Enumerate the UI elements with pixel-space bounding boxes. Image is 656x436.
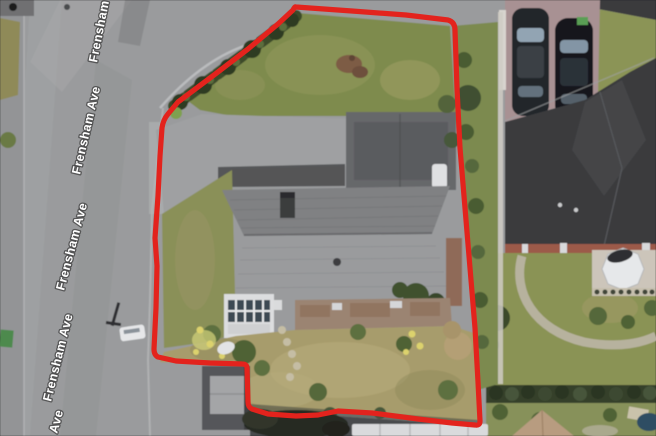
wall-post-1	[522, 244, 528, 253]
bg-bush-6	[396, 336, 412, 352]
lower-bush-3	[603, 408, 617, 422]
rear-bush-3	[392, 282, 408, 298]
road-dot	[64, 4, 70, 10]
rear-window-1	[332, 303, 342, 310]
yellow-flower-patch	[192, 330, 216, 350]
neighbor-green-bin	[577, 17, 588, 25]
margin-bush-4	[468, 198, 484, 214]
garden-bush-1	[589, 307, 607, 325]
lawn-mottle-2	[380, 60, 440, 100]
rear-window-2	[390, 301, 402, 308]
margin-bush-5	[471, 245, 485, 259]
garden-fence-line	[498, 12, 503, 384]
green-bin	[0, 330, 14, 348]
shed-roof-panel	[210, 376, 246, 414]
wall-post-2	[560, 243, 567, 253]
garden-bush-2	[621, 315, 635, 329]
lower-bush-1	[492, 404, 508, 420]
bg-bush-3	[254, 360, 270, 376]
bin-dark	[9, 3, 17, 11]
bg-bush-4	[309, 383, 327, 401]
verge-bush	[0, 132, 16, 148]
conservatory	[224, 294, 274, 338]
roof-vent-1	[558, 203, 562, 207]
garage	[346, 112, 456, 190]
parked-car-1	[512, 8, 549, 116]
roof-front-slope	[222, 186, 450, 236]
bg-tan-bush-2	[443, 321, 461, 339]
road-corner-dark	[0, 0, 34, 16]
garden-mottle-2	[240, 372, 320, 408]
chimney-top	[280, 192, 295, 198]
aerial-property-map: Frensham Ave Frensham Ave Frensham Ave F…	[0, 0, 656, 436]
bg-bush-5	[350, 324, 366, 340]
summerhouse-ridge	[542, 410, 543, 436]
garage-bush-1	[438, 95, 456, 113]
lawn-brown-patch-2	[352, 66, 368, 78]
bg-bush-7	[438, 380, 458, 400]
rear-brick-1	[300, 305, 330, 317]
roof-vent-2	[574, 208, 578, 212]
lawn-brown-dot	[349, 55, 355, 61]
conservatory-sill	[228, 324, 270, 334]
white-car-drive	[432, 164, 447, 188]
roof-dark-mark	[333, 258, 341, 266]
brick-wall-peek	[446, 238, 462, 306]
rear-brick-3	[410, 302, 440, 316]
neighbor-property-right	[479, 0, 656, 436]
grass-verge	[0, 18, 20, 100]
bg-bush-2	[232, 340, 256, 364]
margin-bush-3	[465, 159, 479, 173]
side-lawn-mottle	[175, 210, 215, 310]
house-front-shadow	[218, 164, 345, 187]
rear-brick-2	[350, 303, 390, 317]
